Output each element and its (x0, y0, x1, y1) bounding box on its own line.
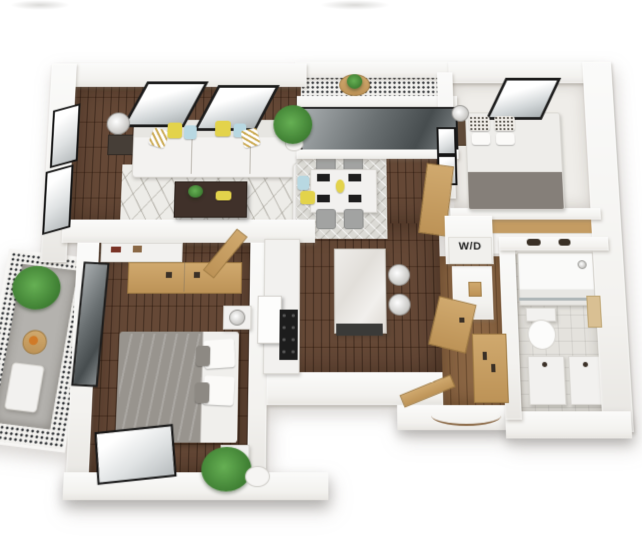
closet-handle (166, 272, 172, 278)
balcony-door-sill (297, 150, 459, 159)
dining-chair (344, 209, 364, 229)
wardrobe-handle (483, 352, 487, 360)
bathroom-bottom-wall (505, 411, 632, 438)
bedroom2-lamp (451, 105, 469, 122)
master-corner-window (94, 424, 176, 485)
blue-pillow (297, 176, 309, 190)
balcony-mosaic-floor (301, 76, 453, 96)
plant-pot (245, 466, 270, 487)
dresser-decor (133, 246, 142, 253)
coffee-table (174, 181, 248, 217)
apartment-plan: W/D (0, 19, 642, 550)
shower-glass-edge (519, 298, 594, 301)
dresser-decor (111, 247, 121, 253)
balcony-plant (347, 74, 362, 89)
wall-grille-window (436, 127, 456, 155)
towel (586, 296, 602, 328)
white-pillow (496, 133, 515, 145)
table-book (216, 191, 232, 201)
entry-door-swing-arc (431, 405, 502, 426)
floorplan-image: W/D (0, 0, 642, 550)
patterned-pillow (469, 116, 490, 131)
yellow-pillow (300, 191, 315, 204)
placemat (317, 174, 330, 182)
range-cooktop (279, 310, 298, 360)
closet-handle (194, 272, 200, 278)
placemat (348, 174, 361, 182)
kitchen-island (334, 249, 387, 334)
blue-pillow (184, 125, 197, 139)
balcony-parapet (295, 62, 458, 78)
table-centerpiece (336, 180, 345, 193)
balcony-sliding-glass-doors (300, 107, 458, 155)
door-handle (459, 318, 464, 323)
bathroom-top-wall (499, 237, 609, 251)
faucet (583, 362, 588, 367)
washer-dryer-label: W/D (451, 241, 489, 253)
placemat (317, 195, 330, 203)
shoes (558, 239, 570, 246)
laundry-door-knob (468, 282, 482, 297)
toilet-bowl (527, 320, 557, 350)
yellow-pillow (215, 121, 231, 137)
island-base-shadow (336, 324, 383, 336)
yellow-pillow (167, 123, 182, 139)
bar-stool (388, 264, 410, 286)
grey-accent-pillow (196, 346, 211, 366)
shoes (527, 239, 541, 246)
white-pillow (472, 133, 491, 145)
bar-stool (388, 294, 411, 316)
patterned-pillow (494, 116, 515, 131)
living-side-window (42, 164, 73, 235)
placemat (349, 195, 362, 203)
wardrobe-handle (491, 364, 495, 372)
shower-head (577, 260, 586, 269)
dining-chair (316, 209, 336, 229)
corner-plant (273, 105, 312, 144)
photo-artifact (10, 0, 70, 10)
faucet (542, 362, 547, 367)
kitchen-appliance (257, 296, 282, 344)
grey-accent-pillow (195, 382, 210, 403)
living-side-window (50, 103, 81, 168)
photo-artifact (320, 0, 390, 10)
